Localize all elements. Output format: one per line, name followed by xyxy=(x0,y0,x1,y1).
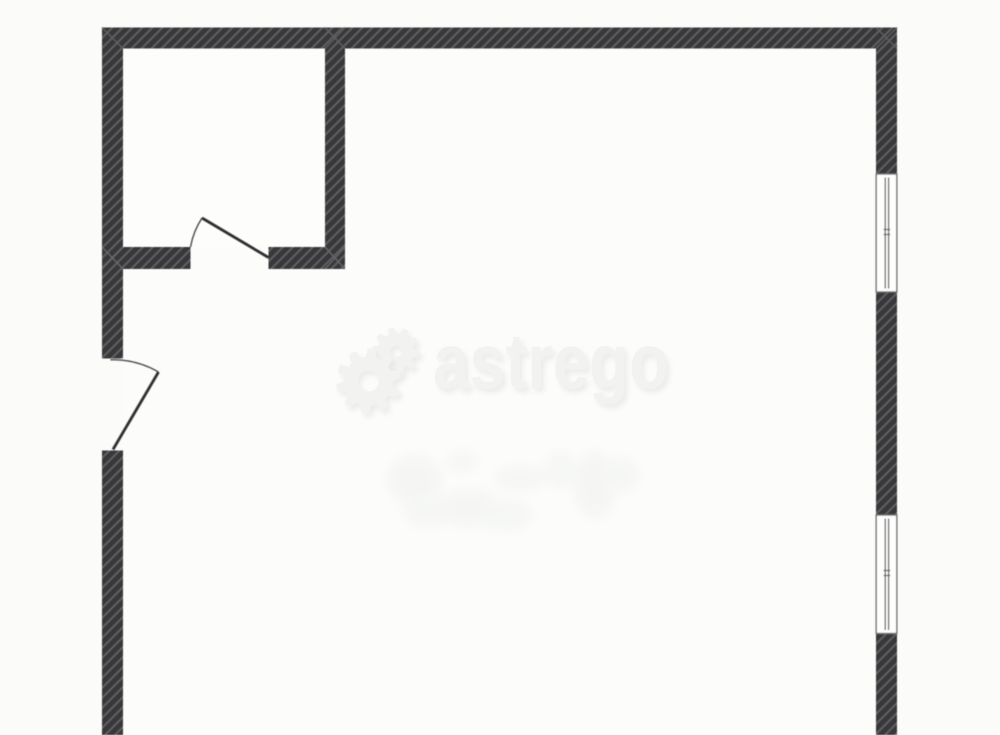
svg-text:astrego: astrego xyxy=(433,317,669,405)
